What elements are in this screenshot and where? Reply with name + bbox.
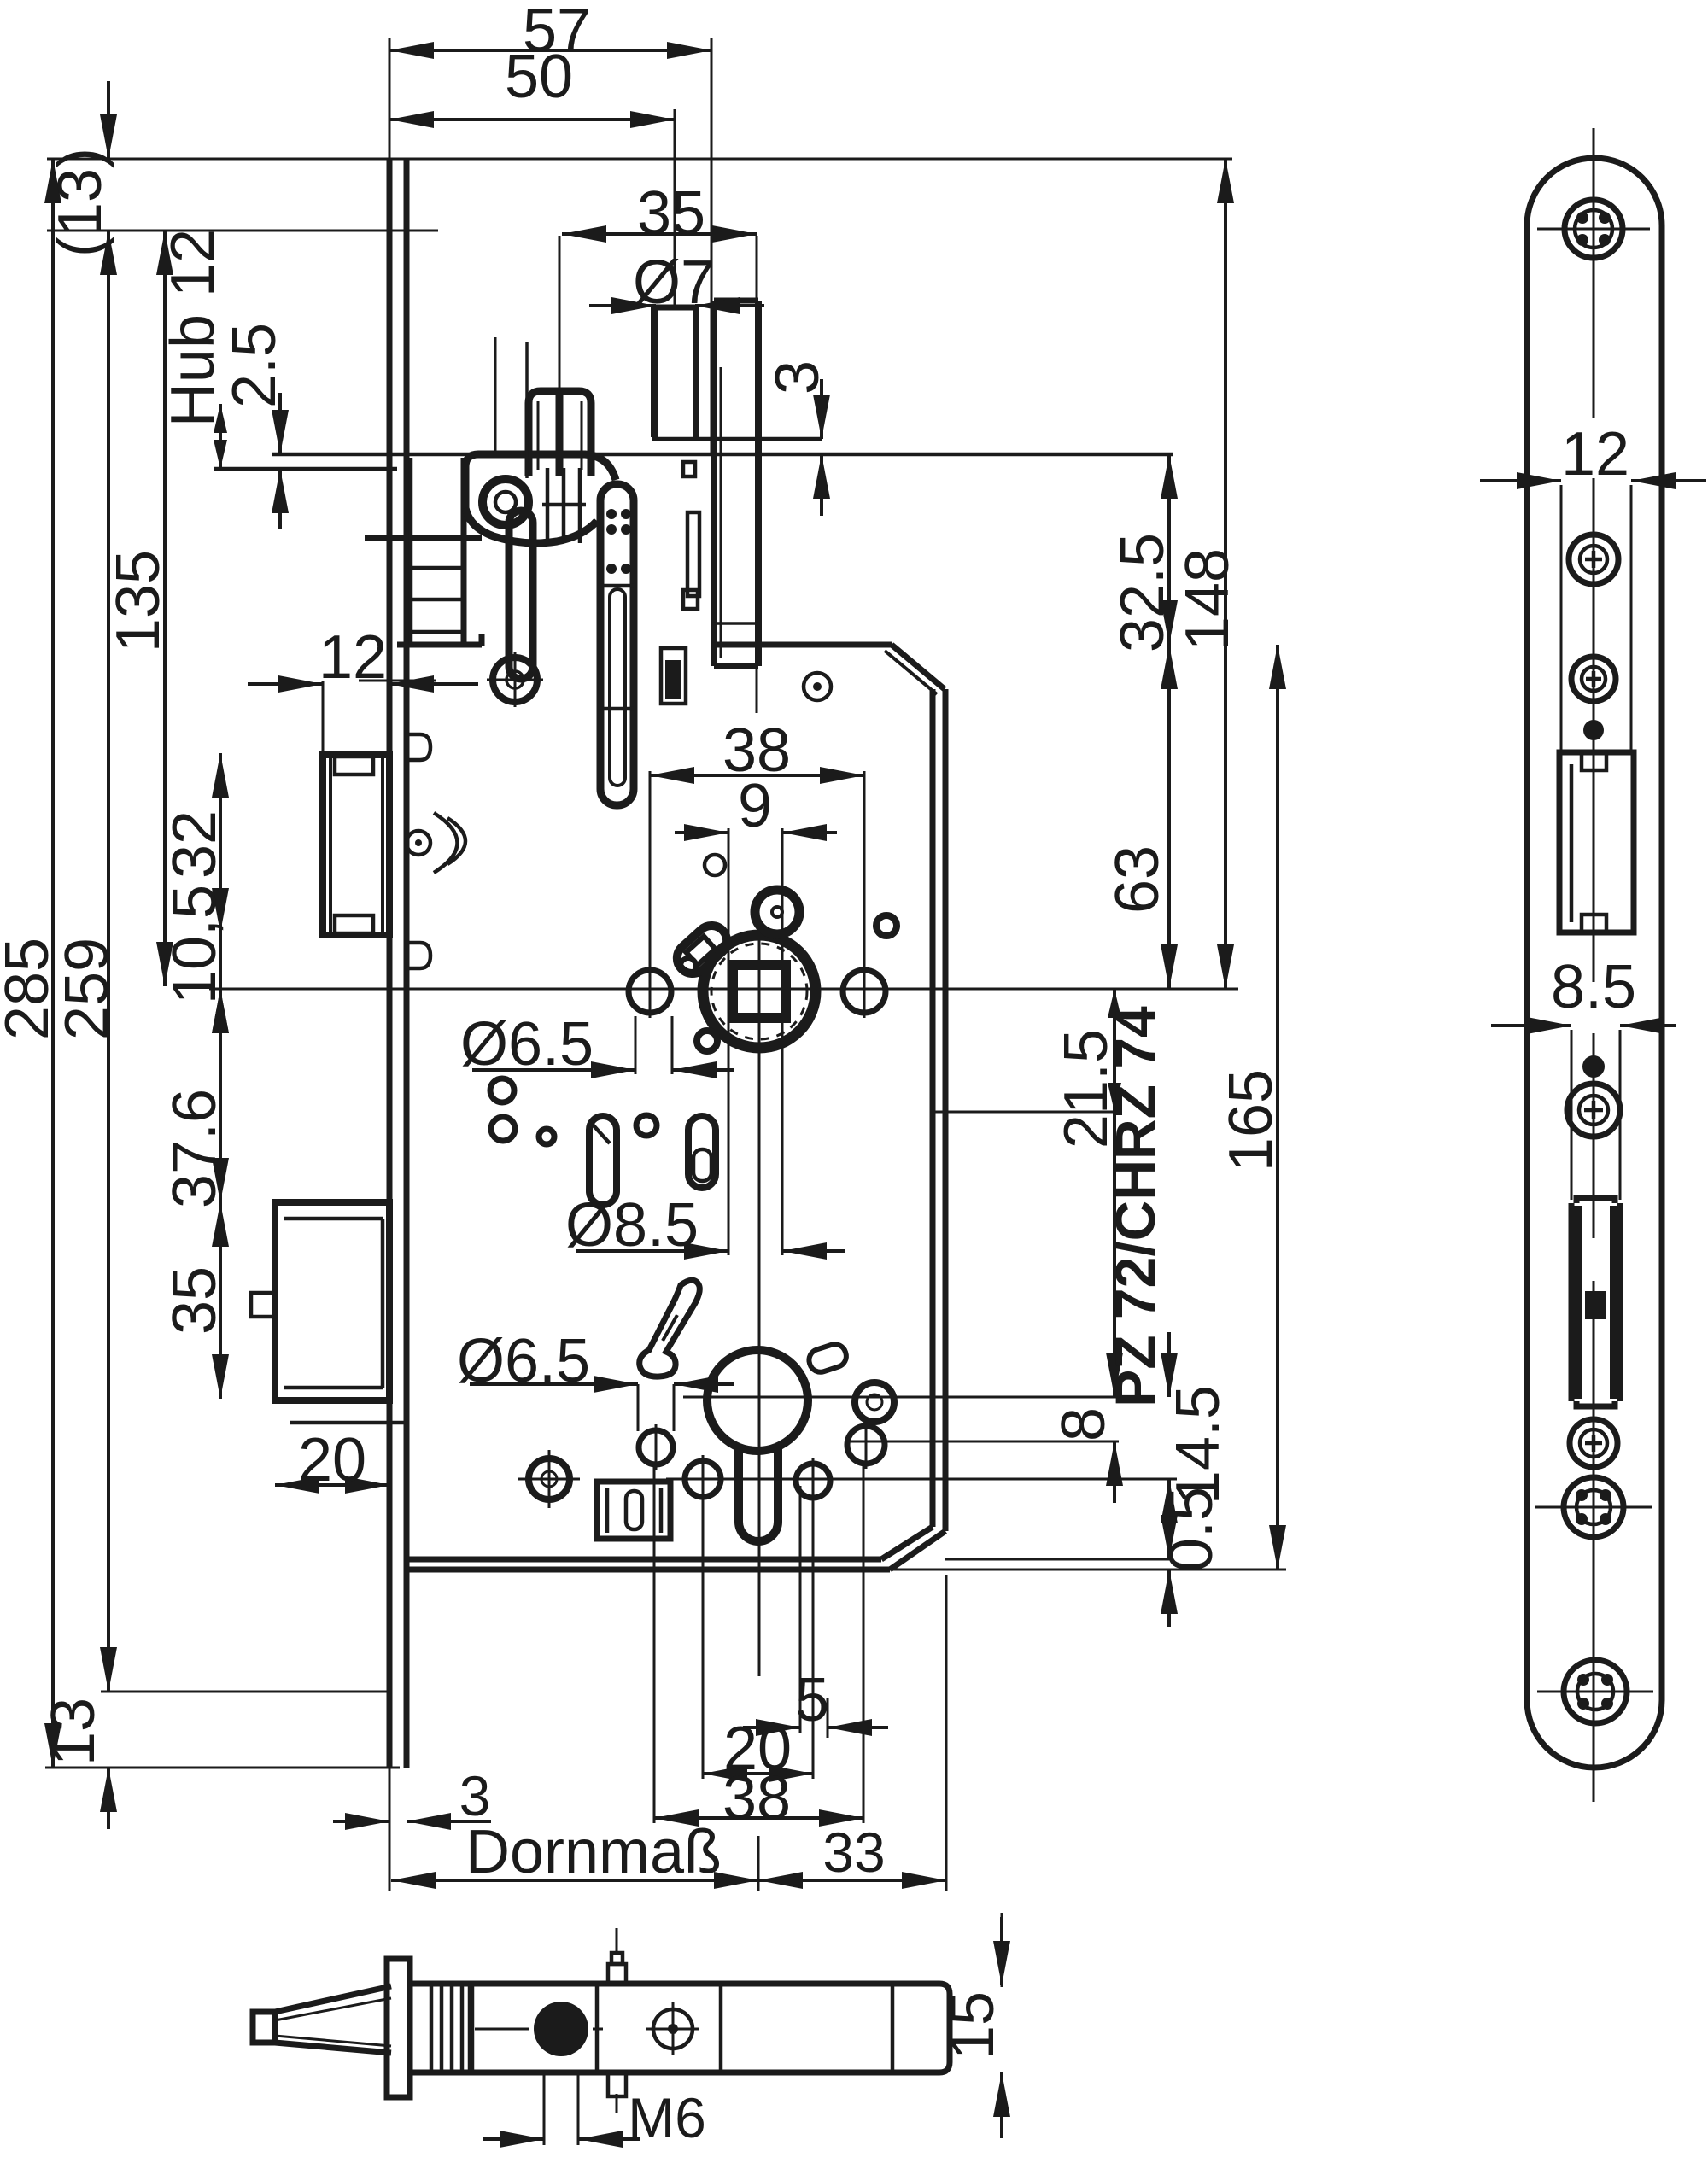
- svg-text:33: 33: [822, 1821, 885, 1884]
- svg-text:5: 5: [795, 1666, 829, 1734]
- svg-text:10,5: 10,5: [161, 885, 229, 1004]
- svg-text:37.6: 37.6: [161, 1089, 229, 1208]
- svg-text:32: 32: [161, 810, 229, 879]
- svg-text:Dornmaß: Dornmaß: [465, 1818, 722, 1886]
- svg-text:3: 3: [763, 360, 832, 395]
- svg-text:135: 135: [104, 550, 173, 652]
- svg-text:259: 259: [53, 938, 121, 1040]
- svg-text:9: 9: [738, 772, 772, 840]
- svg-text:165: 165: [1217, 1069, 1285, 1172]
- svg-text:(13): (13): [46, 148, 114, 257]
- svg-text:35: 35: [637, 179, 705, 248]
- svg-text:20: 20: [298, 1426, 366, 1494]
- svg-text:8: 8: [1050, 1407, 1118, 1441]
- svg-text:50: 50: [505, 43, 573, 111]
- svg-text:63: 63: [1103, 845, 1172, 914]
- svg-text:Ø8.5: Ø8.5: [565, 1191, 699, 1260]
- svg-text:Ø6.5: Ø6.5: [460, 1010, 594, 1078]
- svg-text:35: 35: [161, 1266, 229, 1335]
- svg-text:Ø6.5: Ø6.5: [457, 1327, 590, 1395]
- svg-text:PZ 72/CHRZ 74: PZ 72/CHRZ 74: [1103, 1006, 1167, 1407]
- svg-text:12: 12: [319, 623, 387, 692]
- svg-text:148: 148: [1173, 548, 1242, 651]
- svg-text:15: 15: [939, 1991, 1007, 2060]
- svg-text:12: 12: [1561, 420, 1629, 488]
- svg-text:2.5: 2.5: [220, 323, 289, 408]
- svg-text:8.5: 8.5: [1551, 953, 1636, 1021]
- svg-text:32.5: 32.5: [1108, 533, 1177, 652]
- svg-text:Ø7: Ø7: [633, 248, 715, 317]
- svg-text:M6: M6: [628, 2086, 706, 2149]
- svg-text:Hub 12: Hub 12: [159, 229, 227, 427]
- svg-text:13: 13: [39, 1698, 108, 1766]
- svg-text:38: 38: [722, 1764, 791, 1833]
- svg-text:0.5: 0.5: [1157, 1487, 1225, 1572]
